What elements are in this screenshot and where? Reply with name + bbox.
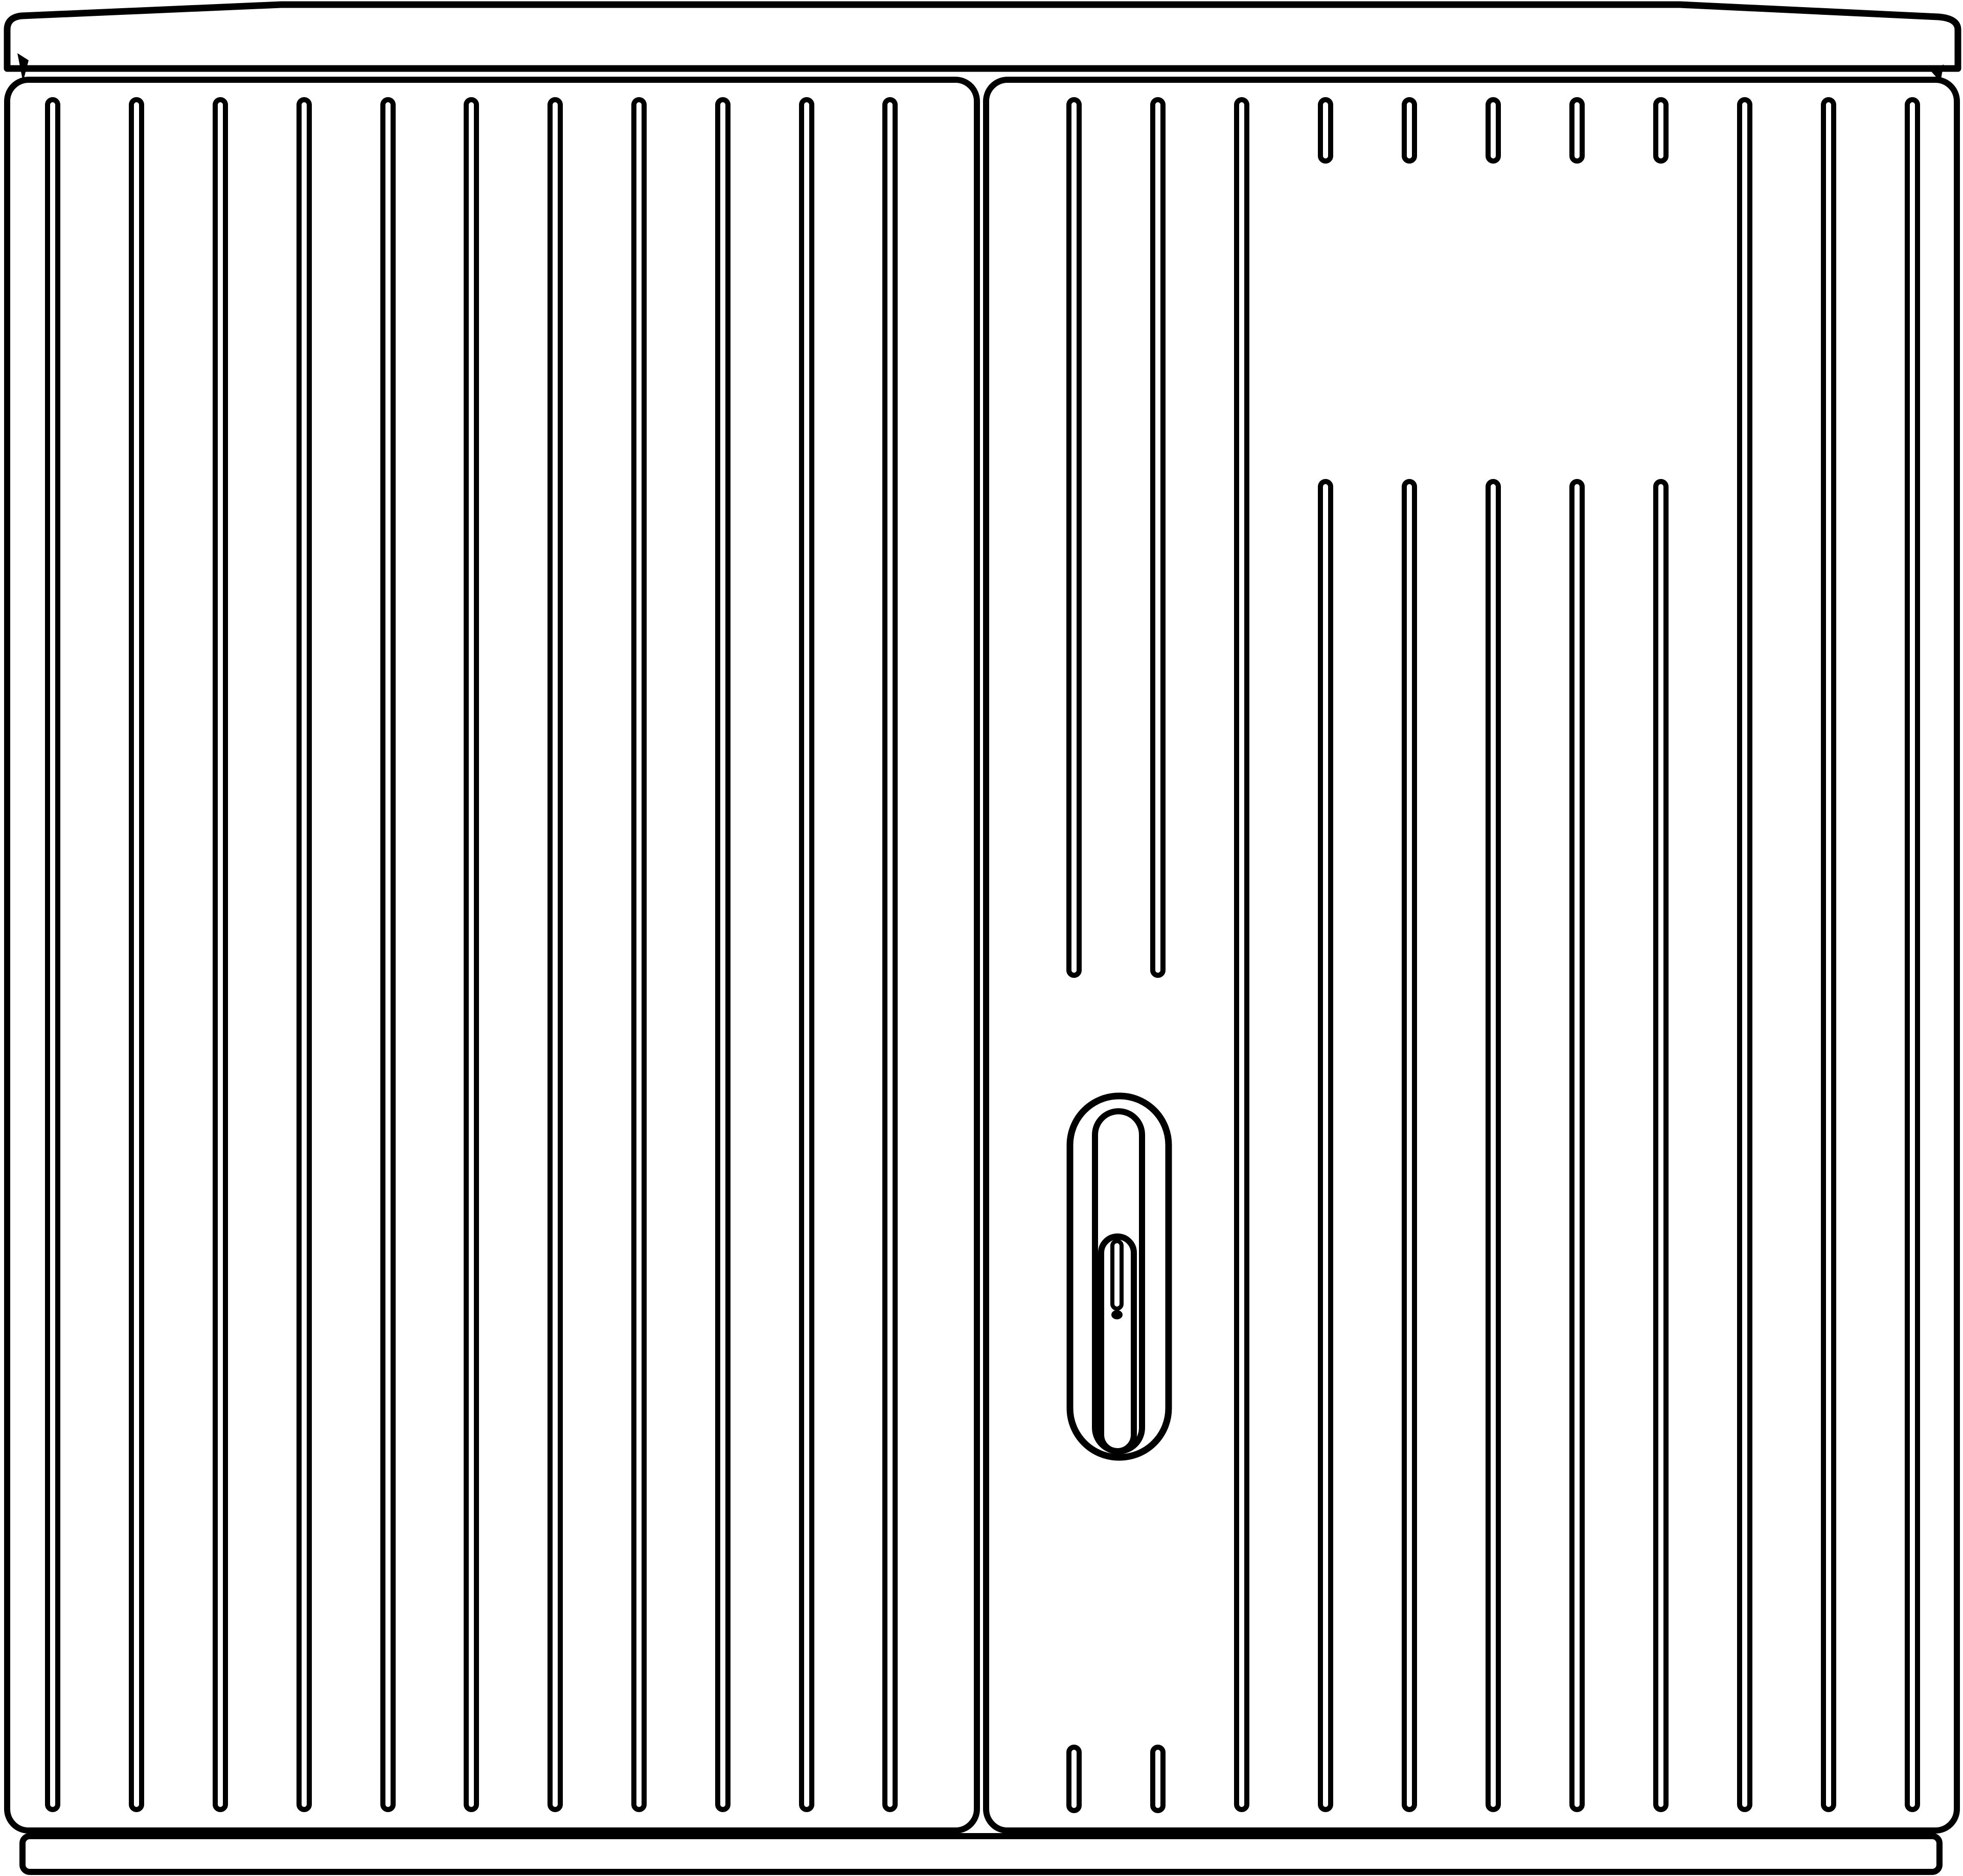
bottom-plinth [22,1836,1939,1872]
lock-cylinder-pin [1111,1310,1123,1319]
technical-drawing-canvas [0,0,1963,1876]
cabinet-front-view-drawing [0,0,1963,1876]
right-door-panel [986,80,1957,1831]
left-door-panel [7,80,977,1831]
roof-cap-outline [7,5,1958,68]
